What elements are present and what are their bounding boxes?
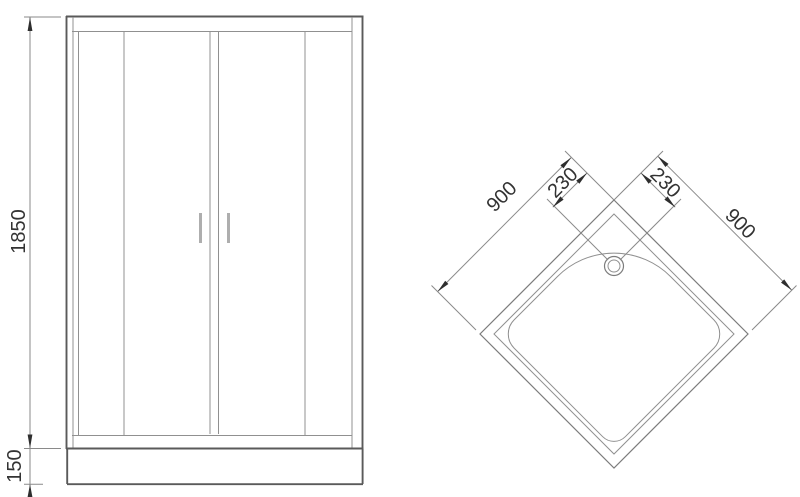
arrow-down-icon	[28, 435, 33, 449]
front-elevation-view	[66, 16, 364, 484]
drain-offset-dimension-left: 230	[543, 163, 608, 260]
plan-view: 900 900 230 230	[432, 151, 797, 468]
dimension-line	[438, 158, 571, 292]
side-right-label: 900	[720, 204, 759, 243]
side-left-label: 900	[482, 177, 521, 216]
tray-height-label: 150	[4, 449, 26, 482]
drain-offset-dimension-right: 230	[620, 163, 685, 260]
extension-lines	[614, 151, 797, 330]
tray-floor-outline	[508, 253, 719, 441]
width-dimension-right: 900	[614, 151, 797, 330]
extension-lines	[432, 151, 615, 330]
width-dimension-left: 900	[432, 151, 615, 330]
technical-drawing-page: 1850 150 900 900	[0, 0, 800, 497]
height-dimension-group: 1850 150	[4, 17, 61, 497]
tray-inner-wall-outline	[494, 214, 734, 454]
arrow-down-right-icon	[781, 279, 792, 290]
arrow-up-icon	[28, 17, 33, 31]
tray-outer-outline	[480, 200, 748, 468]
frame-height-label: 1850	[8, 209, 30, 254]
shower-enclosure-drawing: 1850 150 900 900	[0, 0, 800, 497]
shower-tray-front	[66, 449, 364, 485]
frame-inner-profile	[72, 17, 352, 448]
frame-outline	[66, 16, 364, 449]
drain-offset-left-label: 230	[543, 163, 582, 202]
arrow-up-icon	[28, 484, 33, 497]
sliding-door-left-stile	[124, 32, 210, 436]
arrow-down-left-icon	[438, 281, 449, 292]
drain-offset-right-label: 230	[645, 163, 684, 202]
